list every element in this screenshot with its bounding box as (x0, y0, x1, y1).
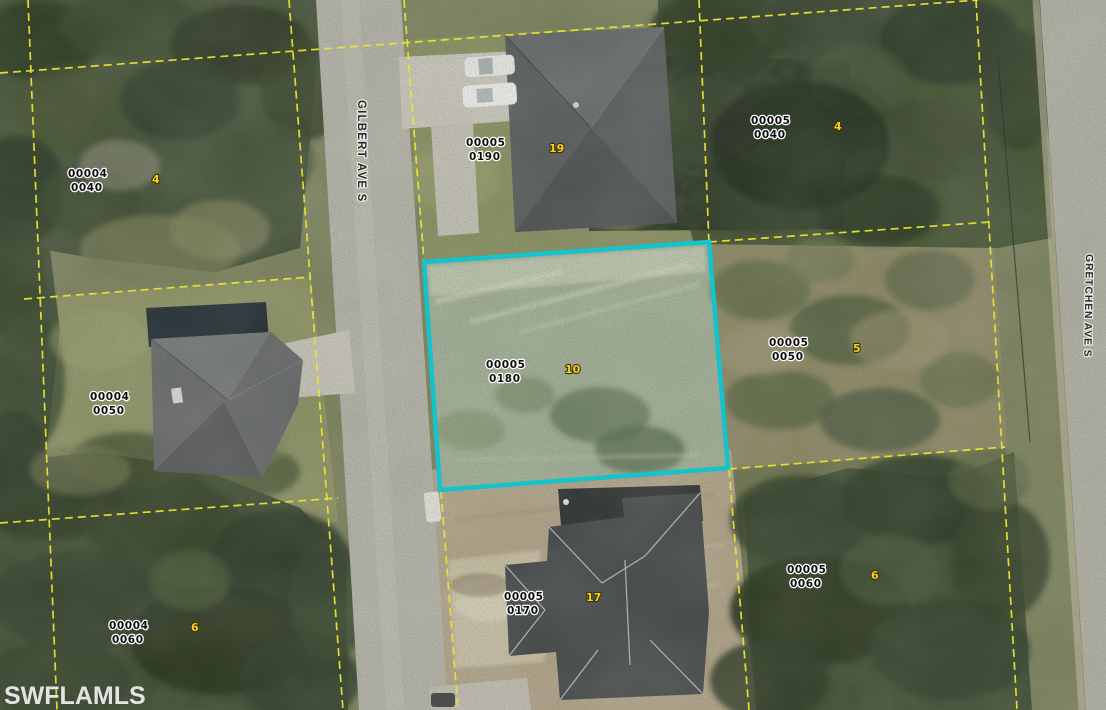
parcel-label-book: 00005 (751, 115, 791, 127)
parcel-label-book: 00005 (504, 591, 544, 603)
parcel-label-page: 0050 (93, 405, 125, 417)
parcel-label-page: 0040 (71, 182, 103, 194)
parcel-label-page: 0040 (754, 129, 786, 141)
parcel-label-book: 00005 (787, 564, 827, 576)
parcel-label-page: 0060 (790, 578, 822, 590)
parcel-label-page: 0180 (489, 373, 521, 385)
parcel-label-page: 0170 (507, 605, 539, 617)
parcel-label-page: 0060 (112, 634, 144, 646)
parcel-label-book: 00005 (486, 359, 526, 371)
lot-number-label: 19 (549, 142, 564, 155)
parcel-label-book: 00004 (109, 620, 149, 632)
street-label-gilbert-ave-s: GILBERT AVE S (355, 100, 367, 203)
lot-number-label: 4 (152, 173, 160, 186)
parcel-label-page: 0050 (772, 351, 804, 363)
lot-number-label: 4 (834, 120, 842, 133)
aerial-map-svg: GILBERT AVE S GRETCHEN AVE S 00004 0040 … (0, 0, 1106, 710)
mls-watermark: SWFLAMLS (4, 682, 146, 710)
lot-number-label: 17 (586, 591, 601, 604)
parcel-label-book: 00004 (68, 168, 108, 180)
lot-number-label: 5 (853, 342, 861, 355)
lot-number-label: 6 (871, 569, 879, 582)
parcel-label-book: 00004 (90, 391, 130, 403)
aerial-map-image: GILBERT AVE S GRETCHEN AVE S 00004 0040 … (0, 0, 1106, 710)
street-label-gretchen-ave-s: GRETCHEN AVE S (1081, 254, 1095, 358)
parcel-label-book: 00005 (769, 337, 809, 349)
parcel-label-page: 0190 (469, 151, 501, 163)
parcel-label-book: 00005 (466, 137, 506, 149)
lot-number-label: 6 (191, 621, 199, 634)
lot-number-label: 10 (565, 363, 581, 376)
grain-texture (0, 0, 1106, 710)
